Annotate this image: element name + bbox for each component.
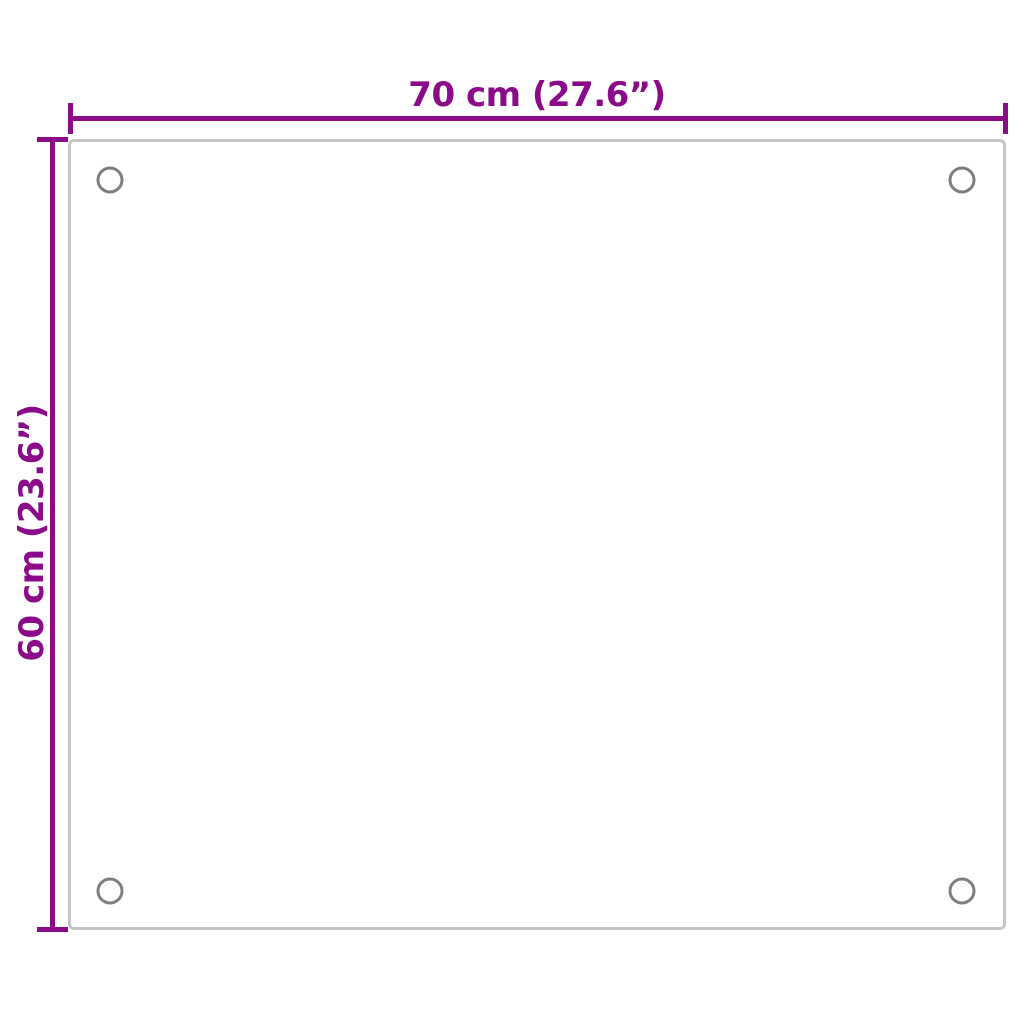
mounting-hole-top-right	[949, 167, 976, 194]
height-dimension-label: 60 cm (23.6”)	[12, 404, 52, 661]
height-dimension-tick-top	[37, 137, 68, 142]
width-dimension-line	[70, 116, 1008, 121]
width-dimension-label: 70 cm (27.6”)	[408, 75, 665, 115]
mounting-hole-bottom-right	[949, 878, 976, 905]
mounting-hole-top-left	[97, 167, 124, 194]
height-dimension-line	[50, 139, 55, 930]
glass-panel-outline	[68, 139, 1006, 930]
width-dimension-tick-left	[68, 103, 73, 134]
width-dimension-tick-right	[1003, 103, 1008, 134]
height-dimension-tick-bottom	[37, 927, 68, 932]
mounting-hole-bottom-left	[97, 878, 124, 905]
dimension-diagram: 70 cm (27.6”) 60 cm (23.6”)	[0, 0, 1024, 1024]
